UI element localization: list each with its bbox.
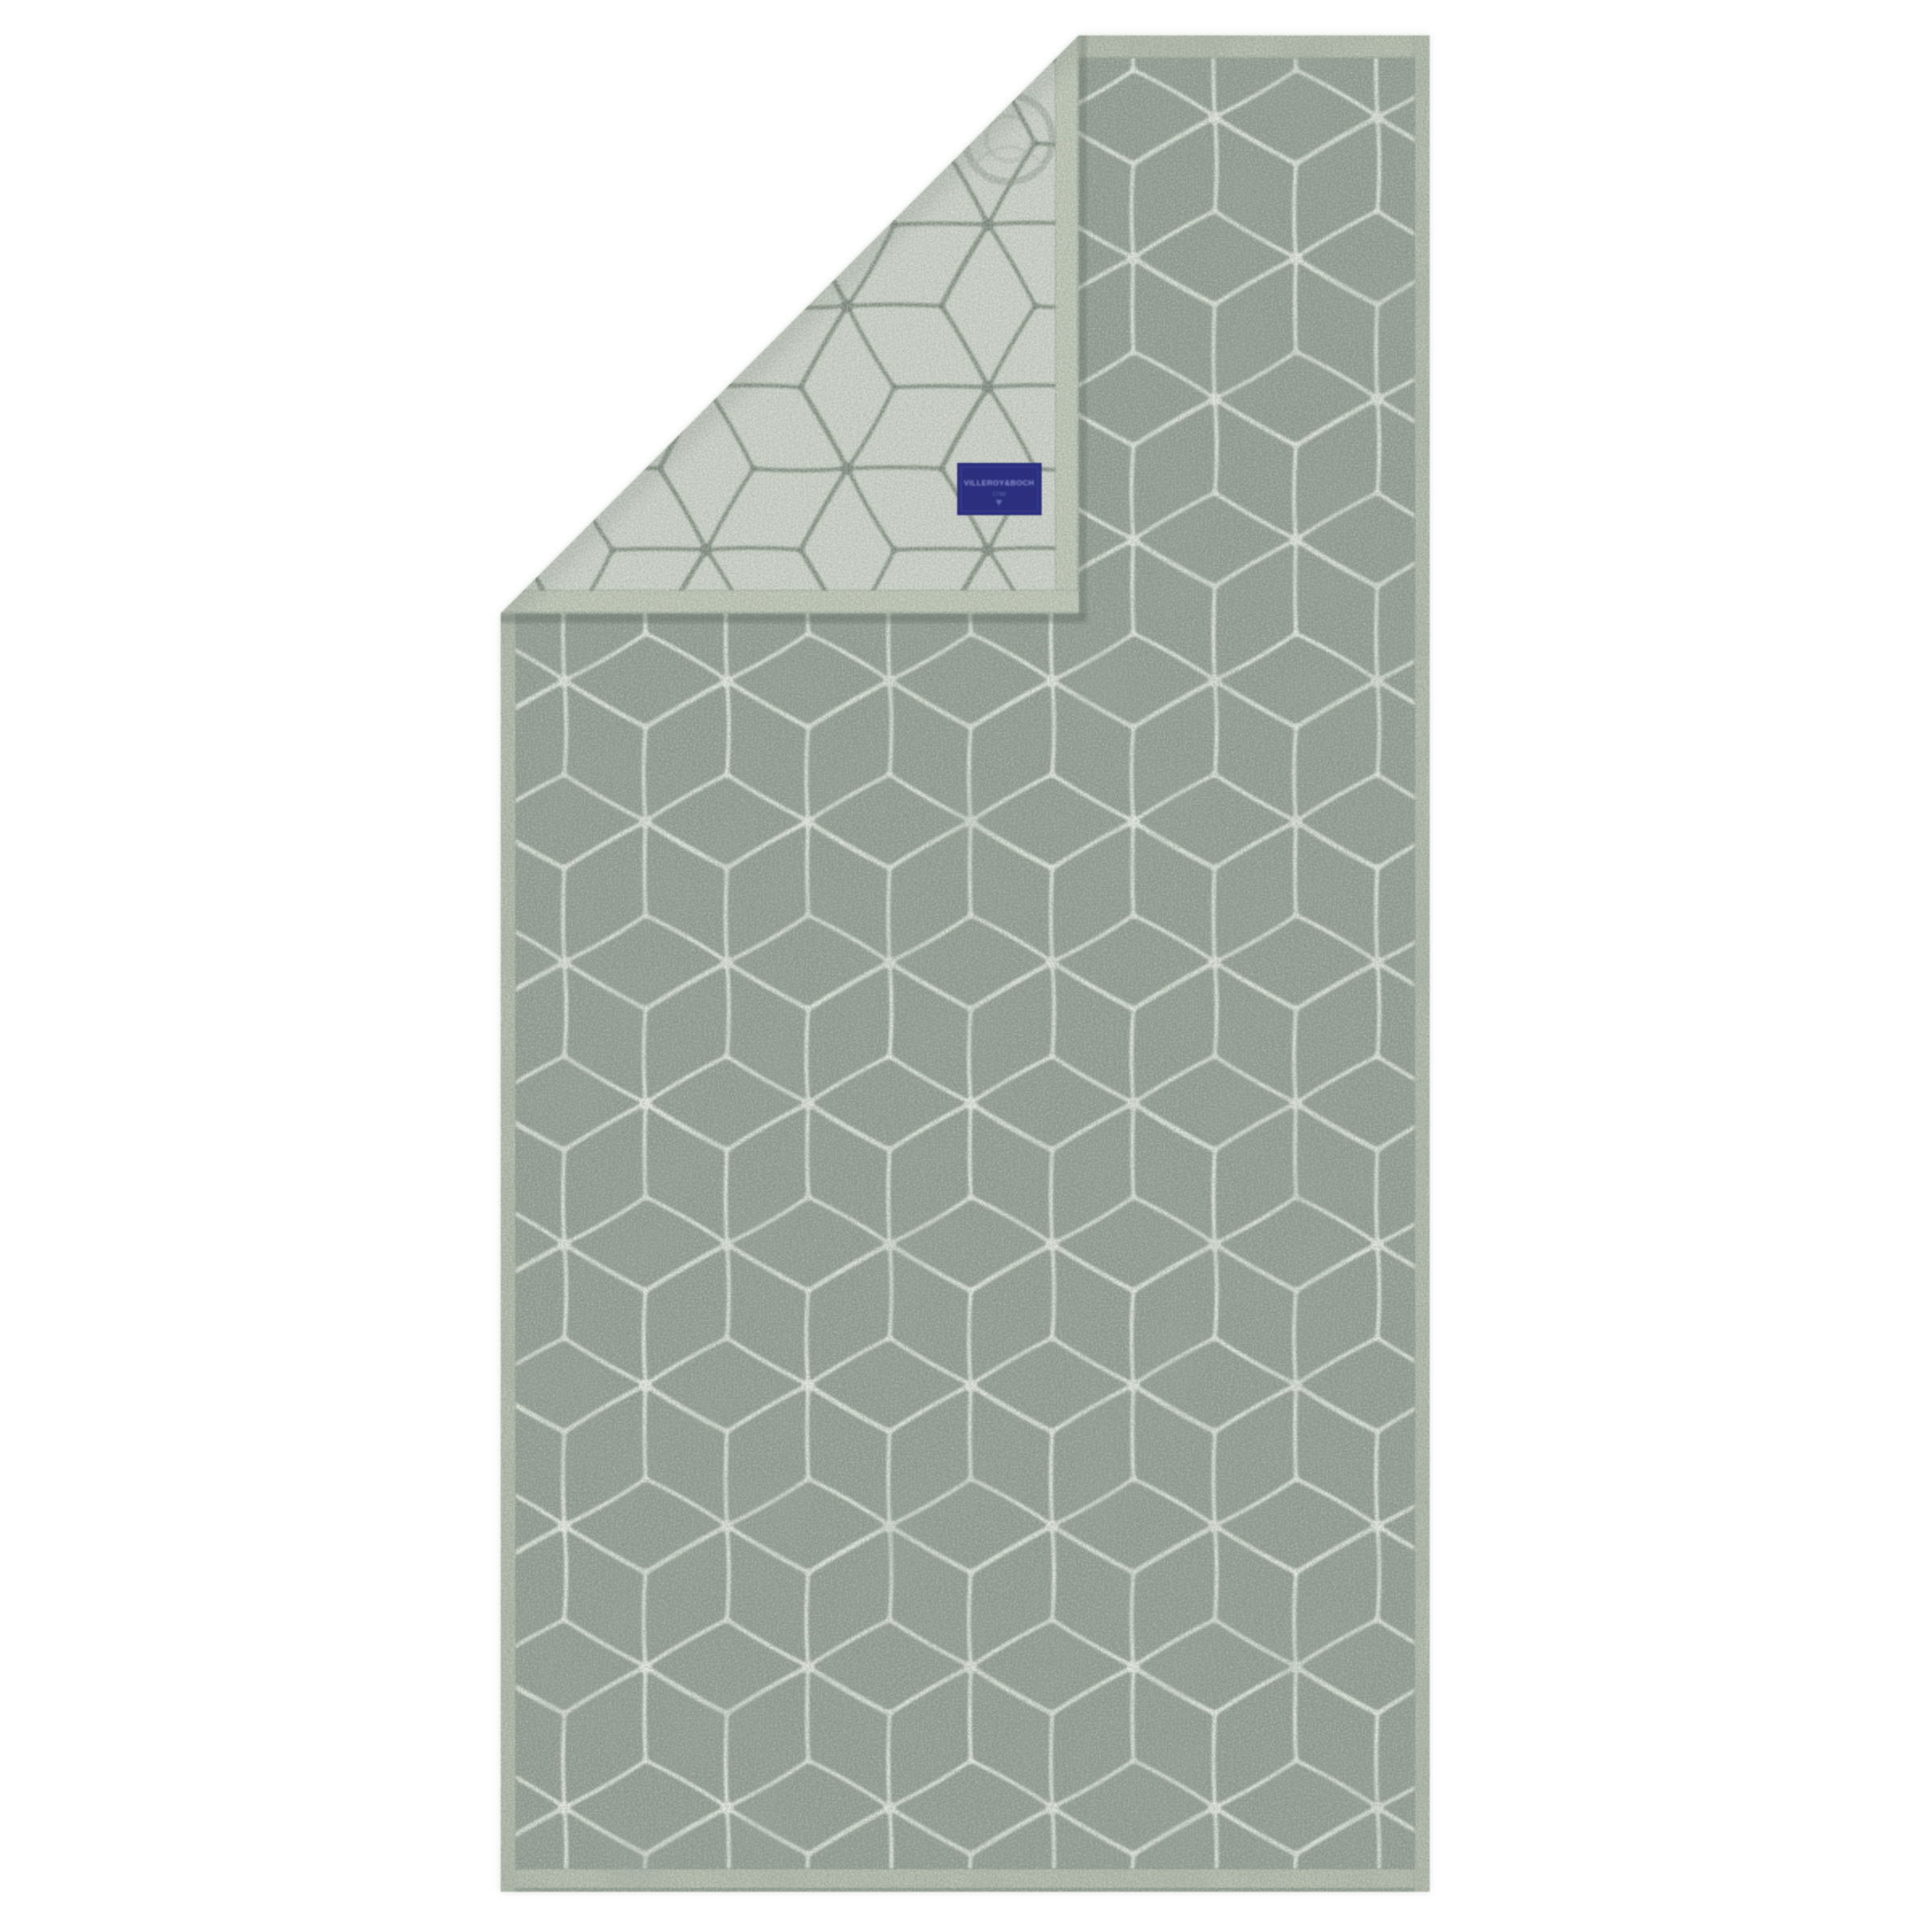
svg-text:VILLEROY&BOCH: VILLEROY&BOCH bbox=[964, 479, 1034, 488]
svg-text:1748: 1748 bbox=[993, 490, 1006, 497]
